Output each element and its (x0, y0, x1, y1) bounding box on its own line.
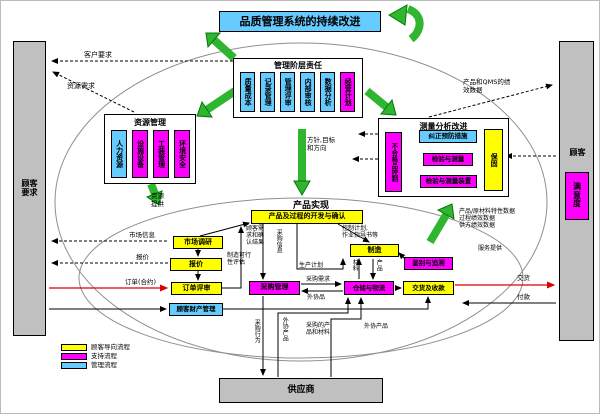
label-production-plan: 生产计划 (299, 262, 323, 269)
legend-swatch-support (61, 353, 87, 360)
resource-management-title: 资源管理 (105, 117, 195, 128)
label-quote: 报价 (136, 254, 149, 262)
node-delivery-payment: 交货及收款 (403, 281, 454, 295)
node-internal-audit: 内部审核 (300, 72, 315, 112)
node-quotation: 报价 (170, 258, 222, 271)
label-qms-performance: 产品和QMS的绩 效数据 (463, 79, 510, 95)
label-customer-confirm: 顾客需 求和确 认结果 (246, 225, 264, 247)
node-management-review: 管理评审 (280, 72, 295, 112)
legend-label-support: 支持流程 (91, 353, 117, 361)
label-payment: 付款 (517, 294, 530, 302)
customer-bar: 顾客 满 意 度 (559, 41, 594, 341)
label-outsourced-item: 外协品 (307, 294, 325, 301)
node-customer-property: 顾客财产管理 (169, 303, 223, 316)
supplier-bar: 供应商 (219, 378, 383, 403)
label-performance-data-block: 产品/原材料特性数据 过程绩效数据 供方绩效数据 (459, 208, 515, 230)
legend-label-management: 管理流程 (91, 362, 117, 370)
label-policy-goal: 方针,目标 和方向 (307, 137, 335, 153)
label-material: 材料 (351, 259, 358, 271)
label-purchase-action: 采购行为 (253, 319, 260, 343)
label-customer-demand: 客户要求 (84, 51, 112, 59)
node-data-analysis: 数据分析 (320, 72, 335, 112)
measurement-analysis-group: 测量分析改进 不合格品控制 纠正预防措施 检验与测量 检验与测量装置 保固 (378, 118, 509, 197)
node-order-review: 订单评审 (171, 282, 222, 295)
diagram-title: 品质管理系统的持续改进 (219, 11, 381, 32)
label-market-info: 市场信息 (129, 232, 155, 240)
label-outsourced-product: 外协产品 (364, 323, 388, 330)
label-control-plan: 控制计划, 作业指导书等 (342, 225, 378, 239)
node-quality-cost: 质量成本 (240, 72, 255, 112)
label-resource-demand: 资源需求 (67, 82, 95, 90)
label-service-supply: 服务提供 (478, 245, 502, 252)
node-corrective-preventive: 纠正预防措施 (419, 130, 477, 143)
label-purchased-materials: 采购的产 品和材料 (306, 322, 330, 336)
management-responsibility-title: 管理阶层责任 (234, 60, 362, 71)
label-order-contract: 订单(合约) (125, 279, 156, 287)
label-product: 产品 (375, 259, 382, 271)
qms-process-diagram: 品质管理系统的持续改进 顾客 要求 顾客 满 意 度 管理阶层责任 质量成本 记… (0, 0, 600, 414)
node-nonconforming-control: 不合格品控制 (385, 132, 402, 192)
customer-requirements-bar: 顾客 要求 (13, 41, 46, 336)
label-purchase-demand: 采购需求 (306, 276, 330, 283)
label-purchase-info: 采购信息 (275, 229, 282, 253)
node-measuring-devices: 检验与测量装置 (420, 175, 477, 188)
legend-swatch-management (61, 362, 87, 369)
node-warehouse-logistics: 仓储与物流 (344, 281, 394, 295)
node-identification-traceability: 鉴别与追溯 (404, 257, 453, 270)
node-business-plan: 经营计划 (340, 72, 355, 112)
legend-swatch-customer-oriented (61, 344, 87, 351)
node-market-research: 市场调研 (173, 236, 223, 249)
management-responsibility-group: 管理阶层责任 质量成本 记录管理 管理评审 内部审核 数据分析 经营计划 (233, 58, 363, 118)
resource-management-group: 资源管理 人力资源 设施设备 工装管理 环境安全 (104, 114, 196, 184)
customer-bar-label: 顾客 (560, 147, 595, 158)
satisfaction-box: 满 意 度 (565, 172, 589, 220)
label-feasibility: 制造可行 性评估 (227, 252, 251, 266)
node-human-resources: 人力资源 (111, 130, 127, 178)
label-delivery: 交货 (517, 275, 530, 283)
node-record-management: 记录管理 (260, 72, 275, 112)
node-inspection-measurement: 检验与测量 (423, 153, 473, 166)
node-environment-safety: 环境安全 (174, 130, 190, 178)
node-manufacturing: 制造 (350, 244, 399, 257)
label-resource-supply: 资源 提供 (151, 193, 164, 209)
node-purchasing-management: 采购管理 (249, 281, 300, 295)
node-product-process-development: 产品及过程的开发与确认 (251, 210, 363, 224)
label-outsourced-product-vertical: 外协产品 (281, 317, 288, 341)
node-tooling-management: 工装管理 (153, 130, 169, 178)
node-warranty: 保固 (484, 129, 503, 191)
legend-label-customer-oriented: 顾客导向流程 (91, 344, 130, 352)
node-facilities-equipment: 设施设备 (132, 130, 148, 178)
